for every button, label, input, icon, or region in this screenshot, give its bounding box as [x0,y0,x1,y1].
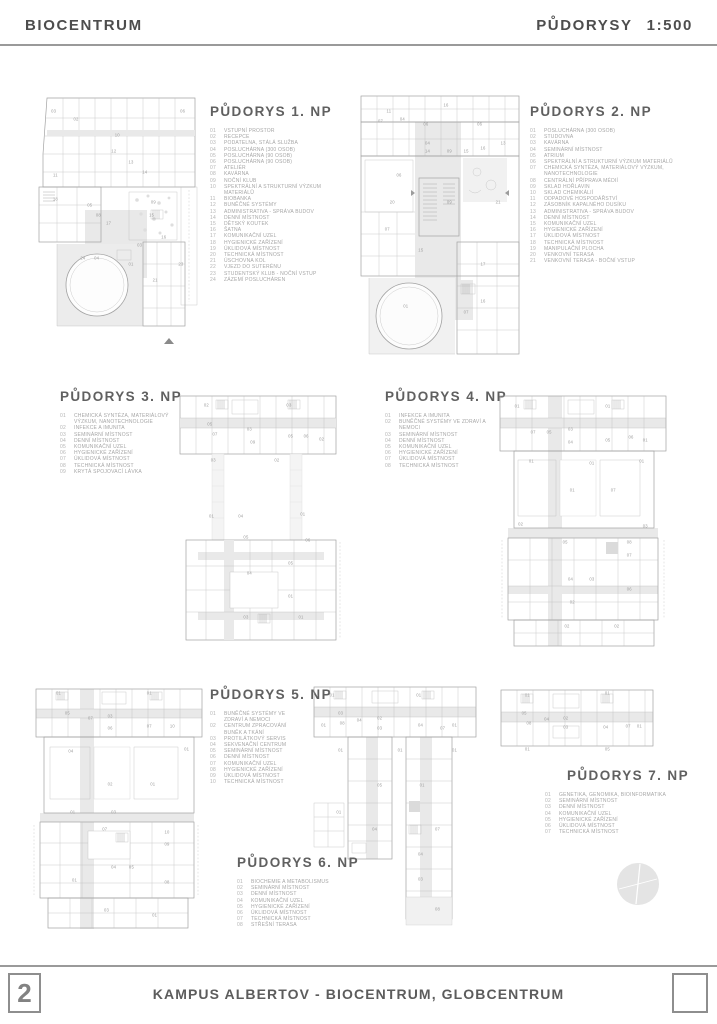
room-number-label: 01 [288,594,293,599]
room-number-label: 09 [447,148,452,153]
room-number-label: 13 [501,140,506,145]
room-number-label: 01 [152,912,157,917]
room-number-label: 01 [589,461,594,466]
room-number-label: 01 [570,487,575,492]
room-number-label: 03 [51,108,56,113]
legend-item: 02BUNĚČNÉ SYSTÉMY VE ZDRAVÍ A NEMOCI [385,419,503,431]
room-number-label: 04 [400,116,405,121]
room-number-label: 01 [147,691,152,696]
legend-item: 07TECHNICKÁ MÍSTNOST [545,829,695,835]
room-number-label: 04 [94,256,99,261]
room-number-label: 04 [372,827,377,832]
legend-plan-2: PŮDORYS 2. NP 01POSLUCHÁRNA (300 OSOB)02… [530,104,680,264]
legend-plan-1: PŮDORYS 1. NP 01VSTUPNÍ PROSTOR02RECEPCE… [210,104,350,283]
room-number-label: 03 [563,724,568,729]
room-number-label: 05 [207,421,212,426]
room-number-label: 01 [420,782,425,787]
room-number-label: 07 [440,725,445,730]
legend-item: 09KRYTÁ SPOJOVACÍ LÁVKA [60,469,170,475]
room-number-label: 09 [165,842,170,847]
legend-item: 10SPEKTRÁLNÍ A STRUKTURNÍ VÝZKUM MATERIÁ… [210,184,350,196]
room-number-label: 04 [544,716,549,721]
room-number-label: 01 [643,437,648,442]
room-number-label: 06 [627,587,632,592]
room-number-label: 02 [204,403,209,408]
legend-item: 01CHEMICKÁ SYNTÉZA, MATERIÁLOVÝ VÝZKUM, … [60,413,170,425]
room-number-label: 05 [65,711,70,716]
room-number-label: 21 [496,199,501,204]
floor-plan-3-drawing: 0203050703090506020302010401050605040103… [172,390,344,648]
sheet-scale: 1:500 [647,17,693,34]
room-number-label: 12 [111,148,116,153]
legend-5-items: 01BUNĚČNÉ SYSTÉMY VE ZDRAVÍ A NEMOCI02CE… [210,711,296,785]
room-number-label: 01 [416,693,421,698]
room-number-label: 04 [418,723,423,728]
room-number-label: 09 [447,199,452,204]
room-number-label: 05 [288,434,293,439]
room-number-label: 01 [525,692,530,697]
legend-item: 24ZÁZEMÍ POSLUCHÁREN [210,277,350,283]
project-title: BIOCENTRUM [25,17,143,34]
floor-plan-7-drawing: 010105080402030407010105 [497,686,657,766]
room-number-label: 02 [614,623,619,628]
room-number-label: 01 [330,693,335,698]
room-number-label: 01 [452,747,457,752]
room-number-label: 01 [336,809,341,814]
legend-item: 08STŘEŠNÍ TERASA [237,922,341,928]
room-number-label: 02 [564,623,569,628]
legend-item: 01BUNĚČNÉ SYSTÉMY VE ZDRAVÍ A NEMOCI [210,711,296,723]
room-number-label: 13 [129,159,134,164]
compass-graphic [616,862,660,906]
room-number-label: 01 [209,514,214,519]
room-number-label: 06 [396,173,401,178]
room-number-label: 03 [286,403,291,408]
room-number-label: 05 [377,782,382,787]
room-number-label: 03 [137,242,142,247]
room-number-label: 02 [570,600,575,605]
floor-plan-5-drawing: 0101050703060710040102010103071009040501… [30,683,208,935]
room-number-label: 04 [425,140,430,145]
room-number-label: 01 [515,403,520,408]
room-number-label: 04 [418,852,423,857]
room-number-label: 01 [525,747,530,752]
room-number-label: 03 [111,809,116,814]
room-number-label: 17 [480,261,485,266]
room-number-label: 07 [531,429,536,434]
room-number-label: 18 [53,197,58,202]
room-number-label: 08 [165,880,170,885]
room-number-label: 16 [480,299,485,304]
room-number-label: 11 [387,108,392,113]
room-number-label: 11 [53,173,58,178]
room-number-label: 08 [340,720,345,725]
footer-title: KAMPUS ALBERTOV - BIOCENTRUM, GLOBCENTRU… [0,986,717,1002]
plan-7-title: PŮDORYS 7. NP [567,768,695,783]
room-number-label: 16 [480,146,485,151]
room-number-label: 01 [150,781,155,786]
room-number-label: 03 [211,457,216,462]
room-number-label: 04 [568,440,573,445]
room-number-label: 06 [304,434,309,439]
room-number-label: 05 [243,535,248,540]
room-number-label: 07 [627,553,632,558]
drawing-sheet: { "header": { "project": "BIOCENTRUM", "… [0,0,717,1024]
room-number-label: 08 [526,720,531,725]
plan-1-title: PŮDORYS 1. NP [210,104,350,119]
room-number-label: 04 [603,724,608,729]
room-number-label: 01 [56,691,61,696]
legend-1-items: 01VSTUPNÍ PROSTOR02RECEPCE03PODATELNA, S… [210,128,350,283]
plan-6-title: PŮDORYS 6. NP [237,855,341,870]
room-number-label: 07 [378,119,383,124]
stamp-box [672,973,708,1013]
room-number-label: 01 [338,747,343,752]
room-number-label: 02 [319,437,324,442]
room-number-label: 05 [605,437,610,442]
room-number-label: 24 [80,256,85,261]
room-number-label: 07 [147,723,152,728]
room-number-label: 08 [435,906,440,911]
plan-4-title: PŮDORYS 4. NP [385,389,503,404]
room-number-label: 05 [522,711,527,716]
room-number-label: 01 [321,723,326,728]
room-number-label: 05 [87,202,92,207]
legend-item: 07CHEMICKÁ SYNTÉZA, MATERIÁLOVÝ VÝZKUM, … [530,165,680,177]
room-number-label: 02 [563,716,568,721]
room-number-label: 03 [104,907,109,912]
room-number-label: 01 [639,458,644,463]
legend-plan-4: PŮDORYS 4. NP 01INFEKCE A IMUNITA02BUNĚČ… [385,389,503,469]
room-number-label: 06 [629,435,634,440]
room-number-label: 04 [238,514,243,519]
room-number-label: 10 [170,723,175,728]
room-number-label: 16 [161,234,166,239]
room-number-label: 16 [444,103,449,108]
room-number-label: 01 [637,724,642,729]
legend-item: 21VENKOVNÍ TERASA - BOČNÍ VSTUP [530,258,680,264]
room-number-label: 03 [108,713,113,718]
room-number-label: 06 [477,122,482,127]
room-number-label: 06 [108,726,113,731]
room-number-label: 05 [563,539,568,544]
room-number-label: 09 [151,199,156,204]
room-number-label: 01 [72,877,77,882]
room-number-label: 05 [547,429,552,434]
room-number-label: 05 [129,864,134,869]
room-number-label: 03 [589,576,594,581]
room-number-label: 03 [243,615,248,620]
room-number-label: 06 [180,108,185,113]
room-number-label: 02 [73,116,78,121]
room-number-label: 07 [626,724,631,729]
room-number-label: 08 [96,213,101,218]
legend-item: 10TECHNICKÁ MÍSTNOST [210,779,296,785]
floor-plan-2-drawing: 1116070406060414091516130620092107151701… [357,92,525,360]
legend-3-items: 01CHEMICKÁ SYNTÉZA, MATERIÁLOVÝ VÝZKUM, … [60,413,170,475]
room-number-label: 02 [377,715,382,720]
room-number-label: 07 [611,487,616,492]
room-number-label: 14 [142,170,147,175]
room-number-label: 01 [70,809,75,814]
room-number-label: 01 [403,304,408,309]
room-number-label: 15 [149,213,154,218]
room-number-label: 01 [298,615,303,620]
room-number-label: 07 [102,827,107,832]
room-number-label: 04 [111,864,116,869]
room-number-label: 10 [115,132,120,137]
plan-5-title: PŮDORYS 5. NP [210,687,296,702]
room-number-label: 10 [165,829,170,834]
room-number-label: 07 [464,309,469,314]
footer-divider [0,965,717,967]
room-number-label: 02 [108,781,113,786]
room-number-label: 14 [425,148,430,153]
legend-item: 08TECHNICKÁ MÍSTNOST [385,463,503,469]
room-number-label: 15 [464,148,469,153]
room-number-label: 21 [153,277,158,282]
room-number-label: 03 [377,725,382,730]
room-number-label: 08 [627,539,632,544]
header-divider [0,44,717,46]
room-number-label: 01 [605,691,610,696]
room-number-label: 05 [288,560,293,565]
sheet-title: PŮDORYSY1:500 [536,17,693,34]
room-number-label: 01 [452,723,457,728]
room-number-label: 03 [247,426,252,431]
room-number-label: 17 [106,221,111,226]
room-number-label: 03 [643,524,648,529]
room-number-label: 02 [518,521,523,526]
legend-item: 02CENTRUM ZPRACOVÁNÍ BUNĚK A TKÁNÍ [210,723,296,735]
room-number-label: 01 [605,403,610,408]
room-number-label: 01 [129,261,134,266]
room-number-label: 15 [418,248,423,253]
room-number-label: 09 [250,439,255,444]
plan-2-title: PŮDORYS 2. NP [530,104,680,119]
room-number-label: 06 [305,537,310,542]
legend-plan-5: PŮDORYS 5. NP 01BUNĚČNÉ SYSTÉMY VE ZDRAV… [210,687,296,785]
legend-6-items: 01BIOCHEMIE A METABOLISMUS02SEMINÁRNÍ MÍ… [237,879,341,929]
room-number-label: 07 [385,226,390,231]
room-number-label: 01 [529,458,534,463]
room-number-label: 03 [418,876,423,881]
room-number-label: 03 [338,710,343,715]
room-number-label: 01 [398,747,403,752]
legend-7-items: 01GENETIKA, GENOMIKA, BIOINFORMATIKA02SE… [545,792,695,835]
room-number-label: 01 [300,511,305,516]
room-number-label: 20 [390,199,395,204]
room-number-label: 05 [605,747,610,752]
sheet-name: PŮDORYSY [536,17,632,34]
floor-plan-4-drawing: 0101070503040506010101010107020305080704… [494,390,672,652]
legend-2-items: 01POSLUCHÁRNA (300 OSOB)02STUDOVNA03KAVÁ… [530,128,680,264]
floor-plan-1-drawing: 0306021012131411180509081715160324040123… [33,92,205,360]
room-number-label: 07 [435,827,440,832]
legend-plan-7: PŮDORYS 7. NP 01GENETIKA, GENOMIKA, BIOI… [545,768,695,835]
plan-3-title: PŮDORYS 3. NP [60,389,170,404]
legend-4-items: 01INFEKCE A IMUNITA02BUNĚČNÉ SYSTÉMY VE … [385,413,503,469]
room-number-label: 06 [423,122,428,127]
room-number-label: 04 [357,718,362,723]
room-number-label: 01 [184,746,189,751]
legend-plan-3: PŮDORYS 3. NP 01CHEMICKÁ SYNTÉZA, MATERI… [60,389,170,475]
room-number-label: 04 [68,749,73,754]
room-number-label: 04 [568,576,573,581]
room-number-label: 04 [247,571,252,576]
room-number-label: 23 [178,261,183,266]
room-number-label: 02 [274,457,279,462]
legend-plan-6: PŮDORYS 6. NP 01BIOCHEMIE A METABOLISMUS… [237,855,341,929]
room-number-label: 07 [212,431,217,436]
room-number-label: 03 [568,427,573,432]
room-number-label: 07 [88,716,93,721]
